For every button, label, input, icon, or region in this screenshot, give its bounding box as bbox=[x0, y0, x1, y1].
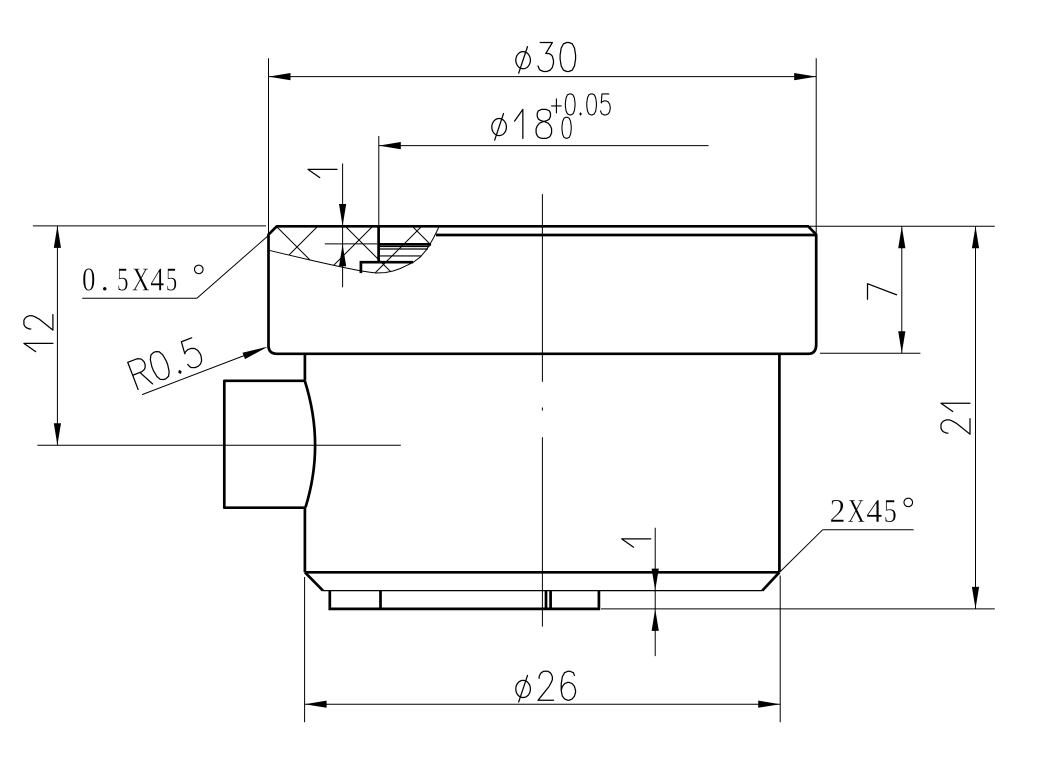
svg-text:X: X bbox=[848, 493, 866, 530]
svg-text:4: 4 bbox=[150, 261, 164, 298]
svg-text:5: 5 bbox=[884, 493, 897, 530]
svg-text:°: ° bbox=[192, 258, 206, 295]
svg-text:.: . bbox=[101, 261, 110, 298]
svg-text:2: 2 bbox=[830, 493, 846, 530]
svg-text:0: 0 bbox=[82, 261, 96, 298]
svg-text:4: 4 bbox=[866, 493, 882, 530]
svg-text:X: X bbox=[132, 261, 150, 298]
svg-text:°: ° bbox=[902, 491, 916, 528]
svg-text:5: 5 bbox=[166, 261, 178, 298]
svg-text:5: 5 bbox=[117, 261, 129, 298]
